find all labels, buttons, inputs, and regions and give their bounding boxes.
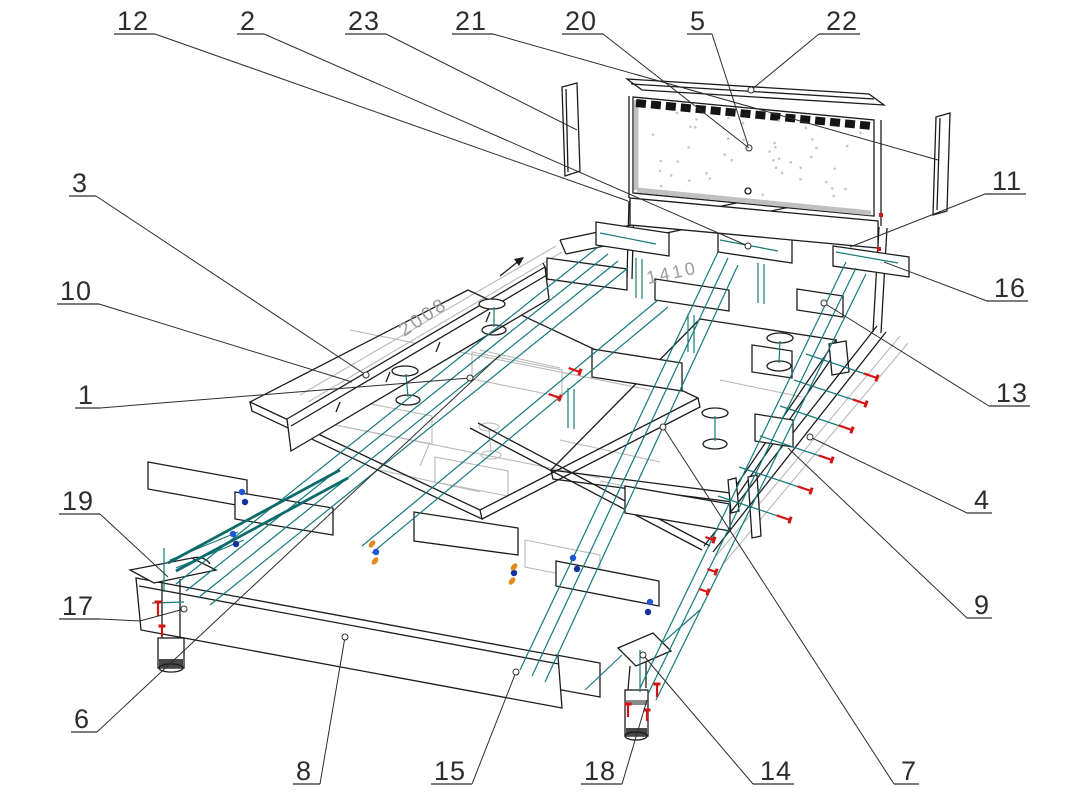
upholstery-dot: [723, 153, 726, 156]
screw-dot-icon: [877, 247, 881, 251]
upholstery-dot: [805, 127, 808, 130]
upholstery-dot: [799, 178, 802, 181]
cam-lock-icon: [647, 599, 653, 605]
upholstery-dot: [831, 187, 834, 190]
assembly-drawing: 2008 1410 123456789101112131415161718192…: [0, 0, 1088, 792]
callout-target-circle: [660, 424, 666, 430]
upholstery-dot: [670, 174, 673, 177]
upholstery-dot: [660, 185, 663, 188]
screw-icon: [777, 515, 791, 523]
callout-target-circle: [363, 372, 369, 378]
callout-number: 16: [994, 273, 1026, 303]
callout-leader: [884, 262, 987, 301]
callout-target-circle: [748, 87, 754, 93]
callout-number: 6: [74, 704, 90, 734]
upholstery-dot: [676, 160, 679, 163]
cam-lock-icon: [574, 566, 580, 572]
callout-number: 2: [240, 6, 256, 36]
callout-number: 18: [584, 756, 616, 786]
callout-leader: [810, 437, 967, 513]
headboard-group: [562, 79, 950, 248]
upholstery-dot: [689, 126, 692, 129]
upholstery-dot: [687, 146, 690, 149]
callout-19: 19: [59, 486, 168, 577]
cam-lock-icon: [233, 541, 239, 547]
callout-number: 9: [974, 590, 990, 620]
callout-number: 4: [974, 485, 990, 515]
upholstery-dot: [815, 147, 818, 150]
upholstery-dot: [768, 150, 771, 153]
upholstery-dot: [727, 117, 730, 120]
callout-number: 11: [992, 166, 1022, 196]
callout-number: 14: [760, 756, 792, 786]
upholstery-dot: [742, 122, 745, 125]
upholstery-dot: [790, 161, 793, 164]
upholstery-dot: [781, 172, 784, 175]
callout-target-circle: [640, 652, 646, 658]
upholstery-dot: [844, 188, 847, 191]
right-vertical-strip: [933, 113, 950, 215]
callout-target-circle: [821, 300, 827, 306]
upholstery-dot: [709, 177, 712, 180]
upholstery-dot: [775, 166, 778, 169]
upholstery-dot: [846, 145, 849, 148]
callout-leader: [824, 303, 989, 406]
upholstery-dot: [778, 119, 781, 122]
callout-target-circle: [807, 434, 813, 440]
callout-number: 22: [826, 6, 858, 36]
cam-lock-icon: [645, 609, 651, 615]
upholstery-dot: [772, 159, 775, 162]
cam-lock-icon: [511, 570, 517, 576]
callout-number: 19: [62, 486, 94, 516]
upholstery-dot: [694, 126, 697, 129]
callout-number: 7: [901, 756, 917, 786]
callout-leader: [788, 448, 967, 618]
screw-icon: [654, 684, 661, 697]
screw-icon: [699, 589, 709, 596]
callout-number: 12: [117, 6, 149, 36]
upholstery-dot: [810, 156, 813, 159]
upholstery-dot: [825, 181, 828, 184]
callout-leader: [643, 655, 753, 784]
callout-13: 13: [821, 300, 1030, 408]
callout-number: 21: [455, 6, 487, 36]
cam-lock-icon: [239, 489, 245, 495]
screw-icon: [798, 486, 812, 494]
callout-number: 3: [72, 168, 88, 198]
upholstery-dot: [811, 138, 814, 141]
callout-target-circle: [467, 375, 473, 381]
cam-lock-icon: [373, 549, 379, 555]
headboard-panel: [633, 97, 874, 216]
upholstery-dot: [742, 139, 745, 142]
callout-3: 3: [69, 168, 369, 378]
dowel-icon: [370, 556, 379, 566]
callout-target-circle: [181, 606, 187, 612]
callout-number: 1: [78, 380, 94, 410]
screw-icon: [839, 425, 853, 433]
callout-9: 9: [788, 448, 992, 620]
cam-lock-icon: [242, 499, 248, 505]
callout-number: 17: [62, 591, 94, 621]
exploded-assembly-diagram: 2008 1410 123456789101112131415161718192…: [0, 0, 1088, 792]
upholstery-dot: [778, 157, 781, 160]
upholstery-dot: [761, 194, 764, 197]
callout-7: 7: [660, 424, 919, 786]
upholstery-dot: [833, 167, 836, 170]
callout-10: 10: [57, 276, 352, 382]
cam-lock-icon: [570, 555, 576, 561]
callout-number: 20: [565, 6, 597, 36]
screw-dot-icon: [879, 213, 883, 217]
upholstery-dot: [659, 170, 662, 173]
left-vertical-strip: [562, 83, 580, 176]
callout-22: 22: [748, 6, 860, 93]
callout-4: 4: [807, 434, 992, 515]
dowel-icon: [507, 576, 516, 586]
upholstery-dot: [832, 195, 835, 198]
callout-leader: [155, 34, 628, 201]
screw-icon: [707, 569, 717, 576]
upholstery-dot: [799, 166, 802, 169]
callout-14: 14: [640, 652, 794, 786]
callout-number: 23: [348, 6, 380, 36]
upholstery-dot: [659, 160, 662, 163]
screw-icon: [819, 455, 833, 463]
cam-lock-icon: [230, 531, 236, 537]
upholstery-dot: [705, 172, 708, 175]
upholstery-dot: [859, 132, 862, 135]
callout-number: 13: [996, 378, 1028, 408]
upholstery-dot: [695, 118, 698, 121]
upholstery-dot: [652, 133, 655, 136]
callout-target-circle: [513, 669, 519, 675]
callout-leader: [100, 514, 168, 577]
callout-target-circle: [745, 243, 751, 249]
callout-number: 8: [296, 756, 312, 786]
callout-number: 15: [434, 756, 466, 786]
callout-leader: [99, 304, 352, 382]
upholstery-dot: [676, 112, 679, 115]
callout-leader: [386, 34, 577, 130]
upholstery-dot: [774, 146, 777, 149]
callout-leader: [751, 34, 819, 90]
upholstery-dot: [688, 179, 691, 182]
callout-number: 5: [690, 6, 706, 36]
right-side-rail: [704, 326, 886, 552]
callout-target-circle: [342, 634, 348, 640]
callout-leader: [96, 196, 366, 375]
upholstery-dot: [727, 137, 730, 140]
callout-number: 10: [60, 276, 92, 306]
upholstery-dot: [730, 159, 733, 162]
upholstery-dot: [773, 142, 776, 145]
parts-layer: [130, 79, 950, 740]
